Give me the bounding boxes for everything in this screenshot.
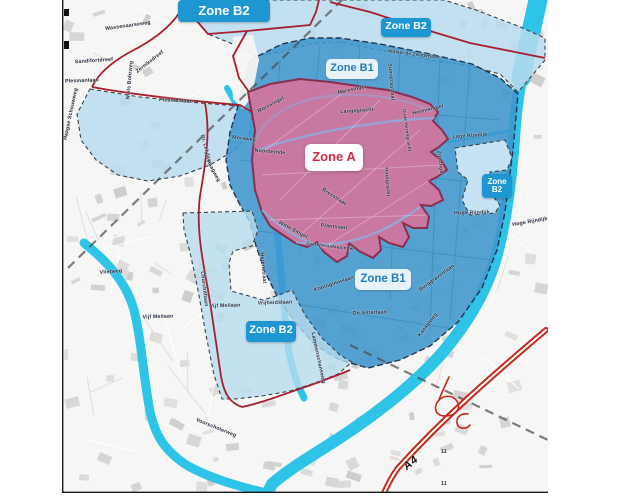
- building-block: [525, 253, 537, 265]
- map-canvas[interactable]: [62, 0, 548, 493]
- building-block: [184, 177, 194, 188]
- building-block: [147, 198, 158, 208]
- zone-map-screenshot: Zone B2Zone B2Zone B1Zone AZoneB2Zone B1…: [0, 0, 636, 500]
- building-block: [106, 375, 114, 382]
- building-block: [79, 474, 89, 481]
- building-block: [226, 443, 239, 451]
- building-block: [479, 465, 492, 469]
- building-block: [179, 360, 189, 368]
- building-block: [64, 349, 68, 360]
- street-line: [187, 352, 188, 392]
- building-block: [152, 287, 159, 293]
- building-block: [338, 480, 352, 488]
- building-block: [67, 236, 79, 242]
- map-svg: [62, 0, 548, 493]
- building-block: [196, 481, 208, 492]
- building-block: [91, 284, 105, 291]
- building-block: [338, 380, 349, 390]
- building-block: [534, 135, 542, 139]
- building-block: [69, 32, 84, 41]
- building-block: [409, 412, 415, 420]
